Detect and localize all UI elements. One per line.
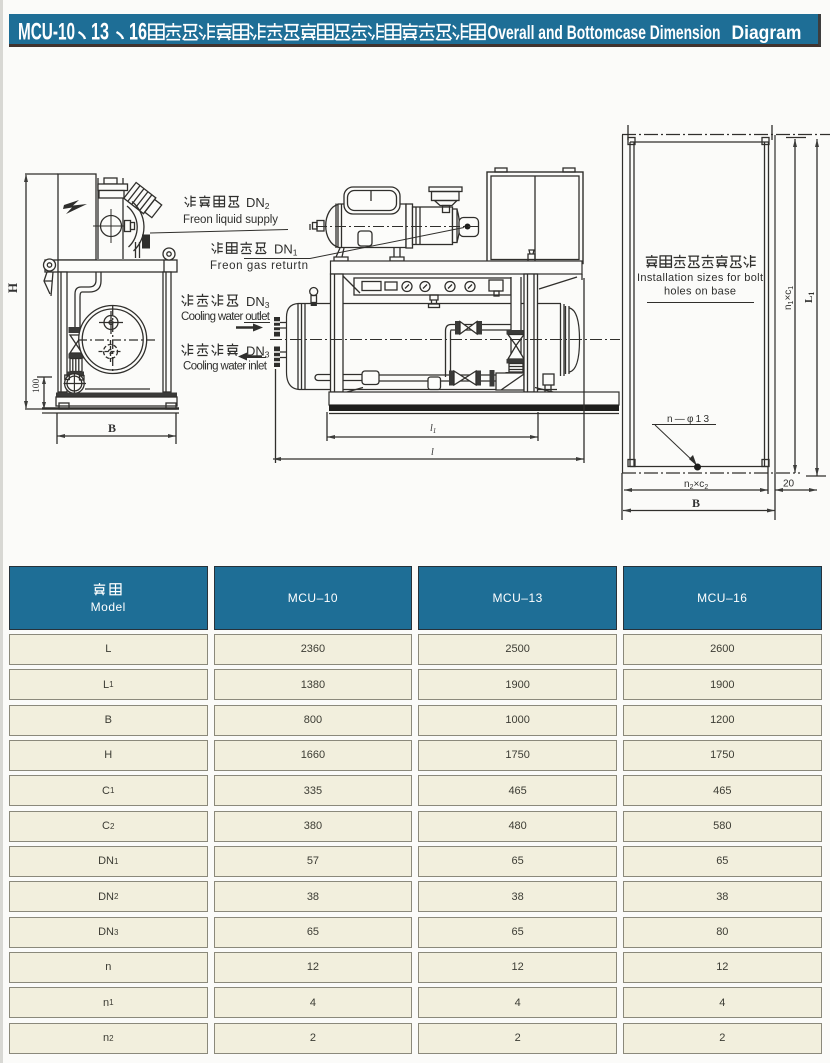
svg-text:Installation sizes for bolt: Installation sizes for bolt <box>637 272 763 284</box>
svg-text:Freon gas returtn: Freon gas returtn <box>210 260 308 272</box>
svg-text:l1: l1 <box>430 423 436 435</box>
svg-text:n1×c1: n1×c1 <box>783 286 795 310</box>
svg-text:20: 20 <box>783 479 795 490</box>
svg-text:B: B <box>692 496 700 510</box>
svg-text:DN3: DN3 <box>246 294 270 310</box>
svg-text:l: l <box>431 447 434 458</box>
svg-text:n—φ13: n—φ13 <box>667 414 709 425</box>
svg-text:Cooling water inlet: Cooling water inlet <box>183 361 268 373</box>
svg-text:B: B <box>108 421 116 435</box>
svg-text:100: 100 <box>32 379 42 394</box>
svg-text:Cooling water outlet: Cooling water outlet <box>181 311 271 323</box>
svg-text:n2×c2: n2×c2 <box>684 479 708 491</box>
svg-text:DN1: DN1 <box>274 242 298 258</box>
svg-text:Freon liquid supply: Freon liquid supply <box>183 214 278 226</box>
svg-text:DN2: DN2 <box>246 195 270 211</box>
svg-text:holes on base: holes on base <box>664 286 736 298</box>
svg-text:H: H <box>5 283 20 293</box>
svg-text:L1: L1 <box>803 292 816 303</box>
